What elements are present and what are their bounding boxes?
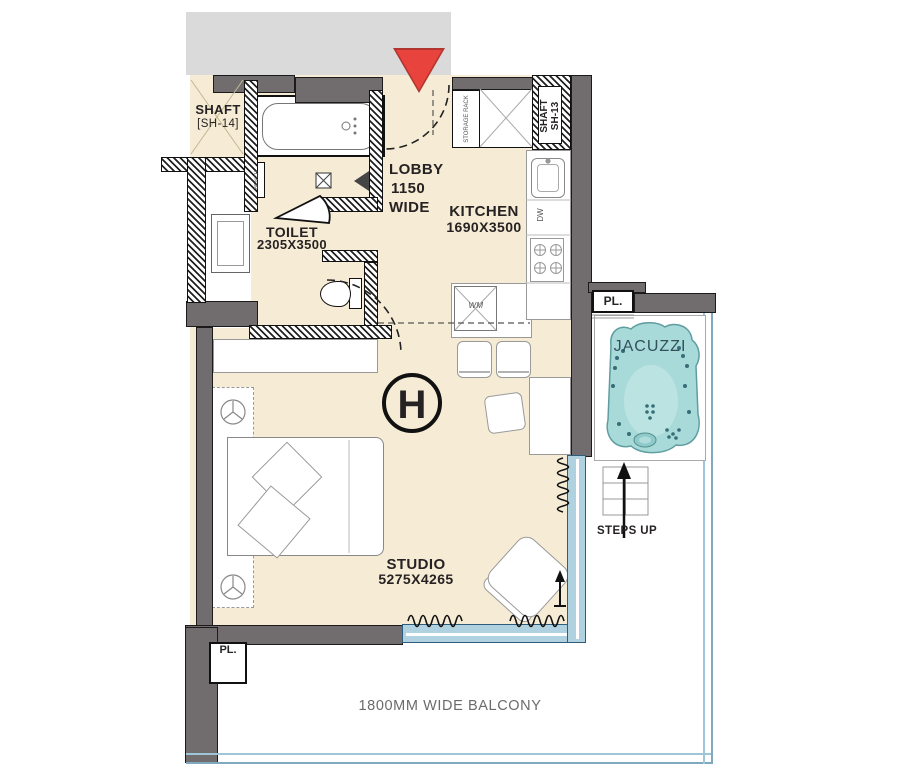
storage-rack-label: STORAGE RACK [455,92,479,146]
bench-label-box: BENCH [251,163,264,197]
wall-right [571,75,592,457]
shaft13-line2: SH-13 [550,87,561,145]
dining-table [529,377,571,455]
wall-hatch-toilet-bottom [249,325,392,339]
bathtub-basin [262,103,377,150]
wall-left-pier [186,301,258,327]
shaft13-label-box: SHAFT SH-13 [538,86,562,144]
sliding-glass-door-right [567,455,586,643]
balcony-label: 1800MM WIDE BALCONY [330,698,570,715]
shaft14-name: SHAFT [190,103,246,118]
jacuzzi-label: JACUZZI [596,338,704,356]
dishwasher-label-box: DW [534,200,548,230]
wall-hatch-left [187,157,206,303]
lobby-width-value: 1150 [391,180,463,197]
unit-marker-circle: H [382,373,442,433]
wardrobe [213,339,378,373]
bench-label: BENCH [251,163,264,197]
bed [227,437,384,556]
floor-plan: H PL. PL. SHAFT SH-13 SHAFT [SH-14] TOIL… [0,0,902,775]
kitchen-name: KITCHEN [434,203,534,220]
planter-box-right: PL. [592,290,634,313]
shaft14-code: [SH-14] [186,118,250,131]
kitchen-sink-basin [537,164,559,192]
unit-marker-letter: H [398,383,427,427]
planter-label: PL. [219,644,236,656]
steps-up-label: STEPS UP [594,525,660,538]
storage-closet [479,88,533,148]
jacuzzi-platform [594,315,706,461]
storage-rack-label-box: STORAGE RACK [455,92,479,146]
dining-chair [496,341,531,378]
shaft13-line1: SHAFT [539,87,550,145]
dishwasher-label: DW [534,200,548,230]
entry-marker-icon-fill [396,50,442,90]
planter-box-bottom-left: PL. [209,642,247,684]
washer-label: WM [455,301,497,310]
wall-hatch-bath-right [369,90,383,212]
kitchen-dims: 1690X3500 [430,219,538,235]
planter-label: PL. [604,294,623,308]
sliding-glass-door-bottom [402,624,586,643]
dining-chair [457,341,492,378]
wall-top-c [452,77,533,90]
lobby-name: LOBBY [389,161,461,178]
wc-bowl [320,281,351,307]
cooktop [530,238,564,282]
dining-chair [484,392,527,435]
wall-hatch-door-stub [320,197,378,212]
wall-step-lower [634,293,716,313]
toilet-dims: 2305X3500 [246,238,338,253]
vanity-basin [217,221,244,266]
wall-left-lower [196,327,213,627]
studio-dims: 5275X4265 [362,571,470,587]
balcony-railing-bottom [186,753,712,764]
